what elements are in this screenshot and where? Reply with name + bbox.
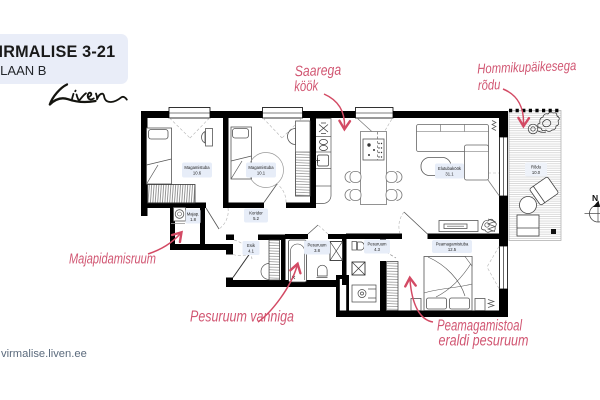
- svg-text:4.3: 4.3: [374, 247, 380, 252]
- svg-text:N: N: [592, 193, 598, 203]
- svg-text:Pesuruum: Pesuruum: [367, 242, 387, 247]
- svg-text:Pesuruum vanniga: Pesuruum vanniga: [190, 309, 294, 326]
- svg-text:3.8: 3.8: [314, 248, 320, 253]
- svg-text:12.5: 12.5: [448, 247, 457, 252]
- svg-text:köök: köök: [294, 77, 320, 95]
- svg-text:Majap.: Majap.: [187, 212, 200, 217]
- svg-text:Peamagamistuba: Peamagamistuba: [436, 242, 469, 247]
- svg-text:Rõdu: Rõdu: [531, 165, 542, 170]
- svg-text:virmalise.liven.ee: virmalise.liven.ee: [1, 348, 87, 360]
- svg-text:PLAAN B: PLAAN B: [0, 63, 46, 78]
- svg-text:5.2: 5.2: [253, 216, 259, 221]
- svg-text:Majapidamisruum: Majapidamisruum: [69, 252, 156, 268]
- svg-text:4.1: 4.1: [248, 249, 254, 254]
- svg-text:Koridor: Koridor: [249, 211, 263, 216]
- svg-text:10.0: 10.0: [532, 170, 541, 175]
- svg-text:eraldi pesuruum: eraldi pesuruum: [439, 333, 529, 350]
- svg-text:Pesuruum: Pesuruum: [307, 243, 327, 248]
- svg-text:VIRMALISE 3-21: VIRMALISE 3-21: [0, 43, 115, 61]
- svg-text:Magamistuba: Magamistuba: [248, 165, 274, 170]
- svg-text:31.1: 31.1: [445, 172, 454, 177]
- svg-text:10.6: 10.6: [193, 171, 202, 176]
- svg-text:Esik: Esik: [247, 243, 256, 248]
- svg-text:1.8: 1.8: [190, 217, 196, 222]
- svg-text:Elutubaköök: Elutubaköök: [438, 166, 462, 171]
- svg-text:rõdu: rõdu: [478, 76, 501, 93]
- svg-text:10.1: 10.1: [257, 171, 266, 176]
- svg-text:Magamistuba: Magamistuba: [184, 165, 210, 170]
